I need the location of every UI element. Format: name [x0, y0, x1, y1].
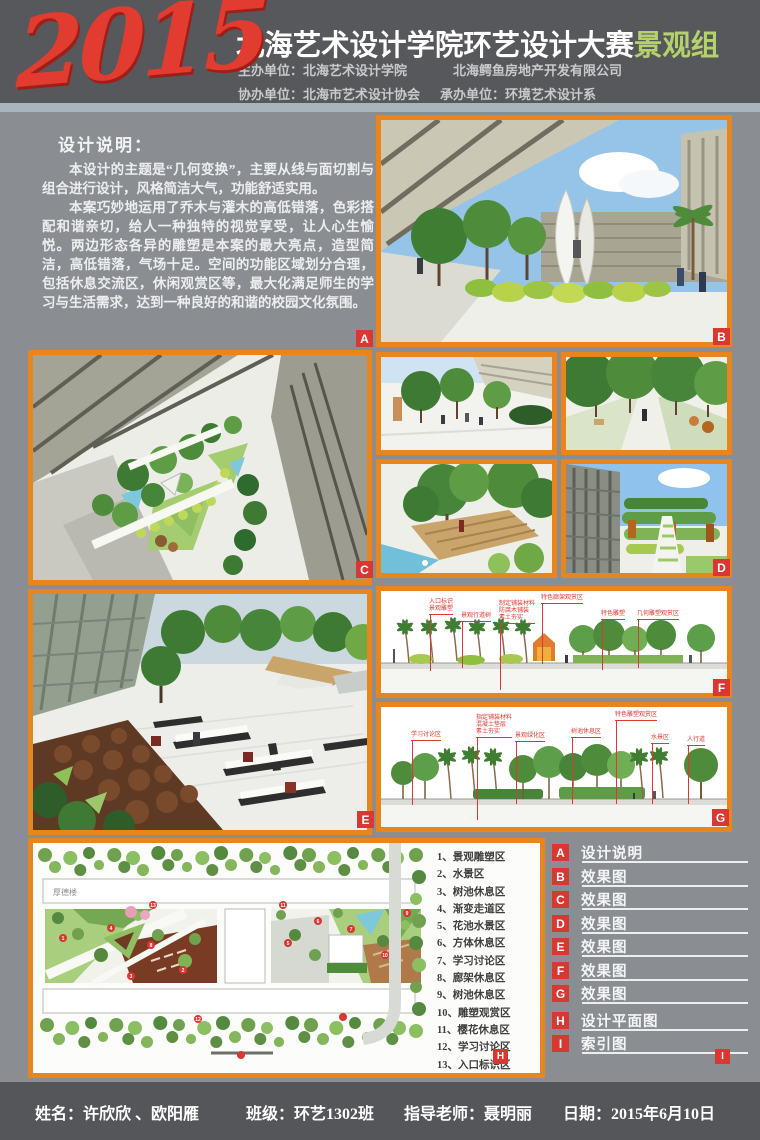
- footer-class: 班级：环艺1302班: [246, 1100, 374, 1124]
- co-org: 北海市艺术设计协会: [303, 84, 420, 103]
- legend-label: 效果图: [581, 983, 628, 1004]
- org-line-2: 协办单位：北海市艺术设计协会承办单位：环境艺术设计系: [238, 84, 596, 103]
- legend-row: E效果图: [552, 936, 628, 957]
- plan-list-item: 4、渐变走道区: [437, 901, 537, 918]
- footer-class-value: 环艺1302班: [294, 1106, 374, 1123]
- annotation-text: 制定铺装材料: [499, 601, 535, 608]
- footer-name-value: 许欣欣 、欧阳雁: [83, 1106, 199, 1123]
- legend-row: H设计平面图: [552, 1010, 659, 1031]
- annotation-callout: 树池休息区: [571, 729, 601, 738]
- footer-teacher-label: 指导老师：: [404, 1106, 484, 1123]
- render-image-grid-1: [376, 352, 557, 455]
- plan-list-item: 9、树池休息区: [437, 987, 537, 1004]
- annotation-callout: 水景区: [651, 735, 669, 744]
- svg-text:7: 7: [350, 927, 353, 933]
- footer-date-label: 日期：: [563, 1106, 611, 1123]
- svg-text:5: 5: [287, 941, 290, 947]
- legend-label: 设计平面图: [581, 1010, 659, 1031]
- legend-key-f: F: [552, 962, 569, 979]
- annotation-text: 水景区: [651, 735, 669, 742]
- render-image-c: [28, 350, 372, 585]
- footer-name-label: 姓名：: [35, 1106, 83, 1123]
- description-heading: 设计说明：: [58, 131, 153, 156]
- annotation-text: 混凝土垫层: [476, 722, 512, 729]
- render-image-grid-4: [561, 459, 732, 578]
- legend-row: G效果图: [552, 983, 628, 1004]
- description-text: 本设计的主题是“几何变换”，主要从线与面切割与组合进行设计，风格简洁大气，功能舒…: [42, 160, 374, 312]
- legend-key-g: G: [552, 985, 569, 1002]
- section-drawing-g: 学习讨论区 指定铺装材料混凝土垫层素土夯实 景观绿化区 树池休息区 特色雕塑观赏…: [376, 702, 732, 832]
- annotation-text: 学习讨论区: [411, 732, 441, 739]
- annotation-text: 入口标识: [429, 599, 453, 606]
- render-scene-grid-1: [381, 357, 552, 450]
- plan-list-item: 6、方体休息区: [437, 935, 537, 952]
- host-org-1: 北海艺术设计学院: [303, 60, 407, 79]
- plan-list-item: 10、雕塑观赏区: [437, 1005, 537, 1022]
- footer-date: 日期：2015年6月10日: [563, 1100, 715, 1124]
- plan-zone-list: 1、景观雕塑区 2、水景区 3、树池休息区 4、渐变走道区 5、花池水景区 6、…: [437, 849, 537, 1074]
- svg-text:4: 4: [110, 926, 113, 932]
- annotation-callout: 人行道: [687, 737, 705, 746]
- legend-key-b: B: [552, 868, 569, 885]
- legend-key-c: C: [552, 891, 569, 908]
- annotation-callout: 特色雕塑: [601, 611, 625, 620]
- render-scene-grid-4: [566, 464, 727, 573]
- annotation-callout: 学习讨论区: [411, 732, 441, 741]
- render-image-e: [28, 589, 372, 835]
- legend-row: I索引图: [552, 1033, 628, 1054]
- svg-text:3: 3: [130, 974, 133, 980]
- undertake-org: 环境艺术设计系: [505, 84, 596, 103]
- section-drawing-f: 入口标识景观雕塑 景观行道树 制定铺装材料防腐木铺装素土夯实 特色廊架观赏区 特…: [376, 586, 732, 698]
- annotation-callout: 特色廊架观赏区: [541, 595, 583, 604]
- render-image-b: [376, 115, 732, 347]
- annotation-callout: 景观行道树: [461, 613, 491, 622]
- plan-list-item: 3、树池休息区: [437, 884, 537, 901]
- svg-text:12: 12: [195, 1017, 201, 1023]
- legend-key-i: I: [552, 1035, 569, 1052]
- legend-row: A设计说明: [552, 842, 643, 863]
- svg-text:2: 2: [182, 968, 185, 974]
- poster-title: 北海艺术设计学院环艺设计大赛景观组: [236, 22, 719, 64]
- svg-text:10: 10: [382, 953, 388, 959]
- svg-text:9: 9: [406, 911, 409, 917]
- svg-text:1: 1: [62, 936, 65, 942]
- marker-d: D: [713, 559, 730, 576]
- legend-key-a: A: [552, 844, 569, 861]
- render-scene-c: [33, 355, 367, 580]
- undertake-label: 承办单位：: [440, 84, 505, 103]
- footer-class-label: 班级：: [246, 1106, 294, 1123]
- render-scene-grid-3: [381, 464, 552, 573]
- marker-g: G: [712, 809, 729, 826]
- marker-i: I: [715, 1049, 730, 1064]
- footer-name: 姓名：许欣欣 、欧阳雁: [35, 1100, 199, 1124]
- render-image-grid-2: [561, 352, 732, 455]
- legend-row: D效果图: [552, 913, 628, 934]
- annotation-text: 防腐木铺装: [499, 608, 535, 615]
- annotation-text: 特色雕塑观赏区: [615, 712, 657, 719]
- render-scene-grid-2: [566, 357, 727, 450]
- plan-list-item: 12、学习讨论区: [437, 1039, 537, 1056]
- legend-label: 设计说明: [581, 842, 643, 863]
- legend-key-d: D: [552, 915, 569, 932]
- annotation-text: 景观雕塑: [429, 606, 453, 613]
- legend-label: 效果图: [581, 913, 628, 934]
- annotation-callout: 景观绿化区: [515, 733, 545, 742]
- annotation-callout: 特色雕塑观赏区: [615, 712, 657, 721]
- footer-bar: 姓名：许欣欣 、欧阳雁 班级：环艺1302班 指导老师：聂明丽 日期：2015年…: [0, 1082, 760, 1140]
- marker-h: H: [493, 1049, 508, 1064]
- render-scene-e: [33, 594, 367, 830]
- legend-label: 效果图: [581, 866, 628, 887]
- legend-label: 效果图: [581, 960, 628, 981]
- plan-list-item: 1、景观雕塑区: [437, 849, 537, 866]
- legend-key-e: E: [552, 938, 569, 955]
- annotation-text: 指定铺装材料: [476, 715, 512, 722]
- svg-text:13: 13: [150, 903, 156, 909]
- marker-f: F: [713, 679, 730, 696]
- annotation-callout: 指定铺装材料混凝土垫层素土夯实: [476, 715, 512, 738]
- marker-e: E: [357, 811, 374, 828]
- annotation-callout: 几何雕塑观赏区: [637, 611, 679, 620]
- annotation-text: 素土夯实: [499, 615, 535, 622]
- annotation-text: 景观行道树: [461, 613, 491, 620]
- legend-label: 效果图: [581, 936, 628, 957]
- legend-row: C效果图: [552, 889, 628, 910]
- marker-b: B: [713, 328, 730, 345]
- plan-list-item: 7、学习讨论区: [437, 953, 537, 970]
- title-main: 北海艺术设计学院环艺设计大赛: [236, 30, 634, 62]
- annotation-callout: 制定铺装材料防腐木铺装素土夯实: [499, 601, 535, 624]
- plan-list-item: 8、廊架休息区: [437, 970, 537, 987]
- annotation-text: 特色廊架观赏区: [541, 595, 583, 602]
- svg-text:8: 8: [150, 943, 153, 949]
- org-line-1: 主办单位：北海艺术设计学院北海鳄鱼房地产开发有限公司: [238, 60, 622, 79]
- legend-label: 效果图: [581, 889, 628, 910]
- legend-row: F效果图: [552, 960, 628, 981]
- annotation-text: 景观绿化区: [515, 733, 545, 740]
- plan-list-item: 11、樱花休息区: [437, 1022, 537, 1039]
- render-image-grid-3: [376, 459, 557, 578]
- index-legend: A设计说明 B效果图 C效果图 D效果图 E效果图 F效果图 G效果图 H设计平…: [552, 838, 752, 1074]
- annotation-text: 素土夯实: [476, 729, 512, 736]
- marker-c: C: [356, 561, 373, 578]
- site-plan-h: 厚德楼: [28, 838, 545, 1078]
- plan-list-item: 2、水景区: [437, 866, 537, 883]
- annotation-text: 人行道: [687, 737, 705, 744]
- description-para-1: 本设计的主题是“几何变换”，主要从线与面切割与组合进行设计，风格简洁大气，功能舒…: [42, 160, 374, 198]
- svg-text:11: 11: [280, 903, 286, 909]
- annotation-text: 几何雕塑观赏区: [637, 611, 679, 618]
- legend-key-h: H: [552, 1012, 569, 1029]
- legend-label: 索引图: [581, 1033, 628, 1054]
- footer-date-value: 2015年6月10日: [611, 1106, 715, 1123]
- section-scene-g: [381, 707, 727, 827]
- footer-teacher: 指导老师：聂明丽: [404, 1100, 532, 1124]
- annotation-text: 特色雕塑: [601, 611, 625, 618]
- plan-building-label: 厚德楼: [53, 887, 77, 897]
- svg-text:6: 6: [317, 919, 320, 925]
- render-scene-b: [381, 120, 727, 342]
- plan-list-item: 5、花池水景区: [437, 918, 537, 935]
- title-group: 景观组: [634, 30, 719, 62]
- host-org-2: 北海鳄鱼房地产开发有限公司: [453, 60, 622, 79]
- competition-poster: 2015 北海艺术设计学院环艺设计大赛景观组 主办单位：北海艺术设计学院北海鳄鱼…: [0, 0, 760, 1140]
- plan-list-item: 13、入口标识区: [437, 1057, 537, 1074]
- marker-a: A: [356, 330, 373, 347]
- annotation-text: 树池休息区: [571, 729, 601, 736]
- annotation-callout: 入口标识景观雕塑: [429, 599, 453, 615]
- header-divider: [0, 103, 760, 112]
- legend-row: B效果图: [552, 866, 628, 887]
- footer-teacher-value: 聂明丽: [484, 1106, 532, 1123]
- description-para-2: 本案巧妙地运用了乔木与灌木的高低错落，色彩搭配和谐亲切，给人一种独特的视觉享受，…: [42, 198, 374, 312]
